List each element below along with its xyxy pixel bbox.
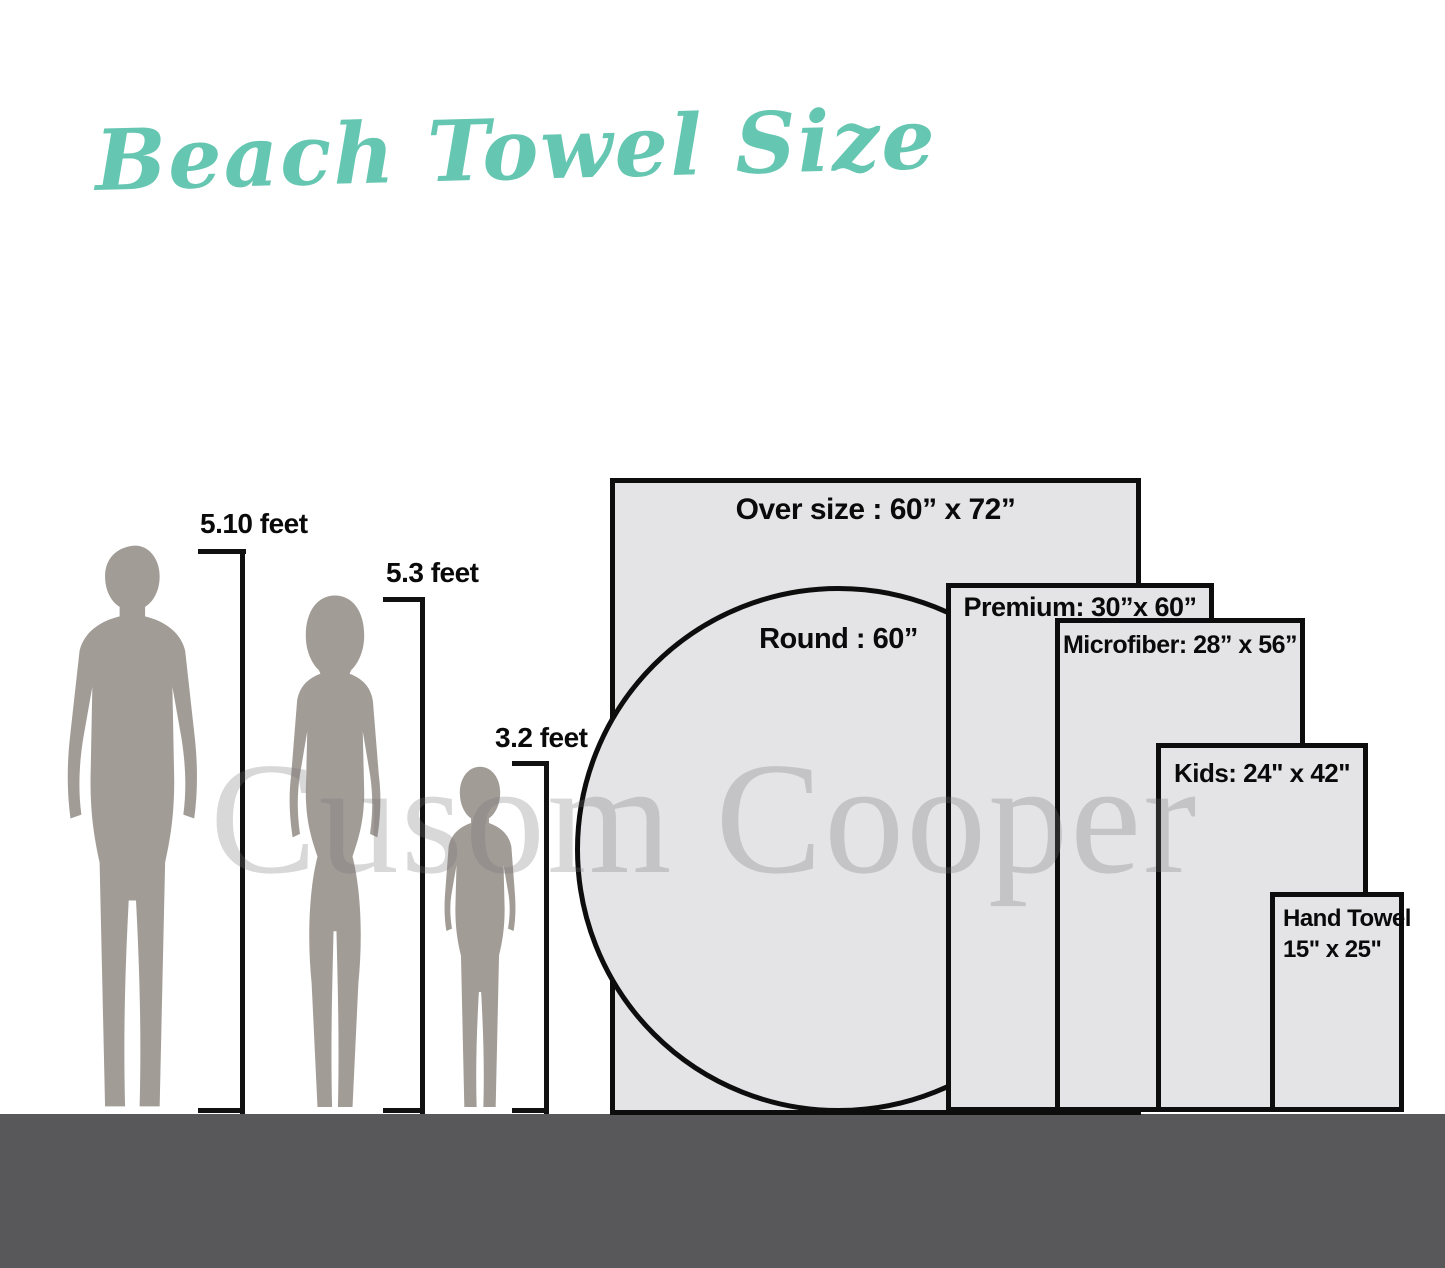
woman-bracket-bottom-line bbox=[383, 1108, 425, 1113]
child-bracket-vertical-line bbox=[544, 761, 549, 1114]
page-title: Beach Towel Size bbox=[94, 89, 938, 210]
towel-kids-label: Kids: 24" x 42" bbox=[1161, 748, 1363, 789]
man-silhouette-icon bbox=[45, 542, 227, 1114]
woman-silhouette bbox=[262, 592, 408, 1114]
woman-bracket-top-line bbox=[383, 597, 425, 602]
towel-oversize-label: Over size : 60” x 72” bbox=[615, 483, 1136, 527]
towel-hand-label-line2: 15" x 25" bbox=[1283, 934, 1399, 965]
man-bracket-vertical-line bbox=[240, 549, 245, 1114]
child-silhouette-icon bbox=[424, 762, 536, 1114]
woman-height-label: 5.3 feet bbox=[386, 557, 479, 589]
man-height-label: 5.10 feet bbox=[200, 508, 308, 540]
man-silhouette bbox=[45, 542, 227, 1114]
child-bracket-bottom-line bbox=[512, 1108, 549, 1113]
woman-bracket-vertical-line bbox=[420, 597, 425, 1114]
man-bracket-bottom-line bbox=[198, 1108, 245, 1113]
man-bracket-top-line bbox=[198, 549, 246, 554]
towel-microfiber-label: Microfiber: 28” x 56” bbox=[1060, 623, 1300, 660]
towel-hand-label-line1: Hand Towel bbox=[1283, 903, 1399, 934]
child-height-label: 3.2 feet bbox=[495, 722, 588, 754]
towel-hand-label: Hand Towel 15" x 25" bbox=[1275, 897, 1399, 965]
woman-silhouette-icon bbox=[262, 592, 408, 1114]
beach-towel-size-infographic: Beach Towel Size Over size : 60” x 72” R… bbox=[0, 0, 1445, 1268]
towel-hand: Hand Towel 15" x 25" bbox=[1270, 892, 1404, 1112]
ground-bar bbox=[0, 1114, 1445, 1268]
child-silhouette bbox=[424, 762, 536, 1114]
